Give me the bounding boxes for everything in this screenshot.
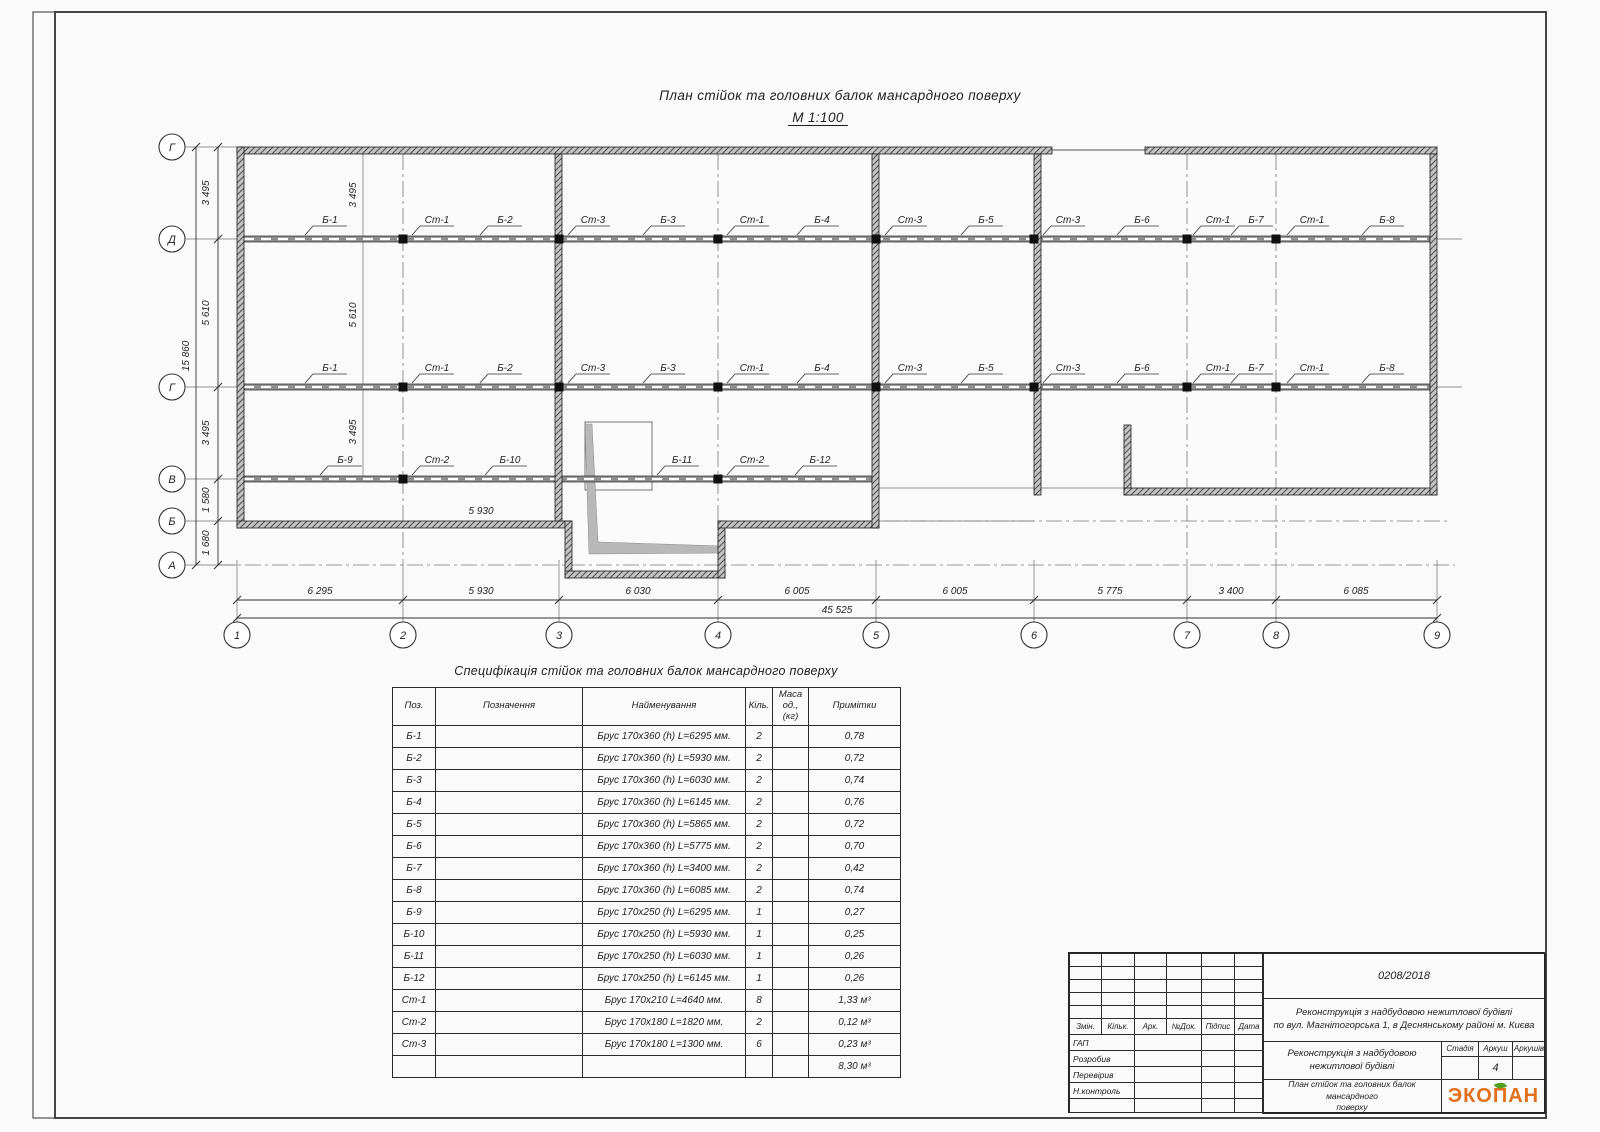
col-data: Дата [1235,1019,1264,1035]
svg-text:Ст-3: Ст-3 [581,215,606,226]
spec-cell-notes: 0,72 [809,748,901,770]
svg-text:1 580: 1 580 [201,487,212,512]
axis-col-label: 9 [1434,630,1440,642]
stair-ramp [585,424,722,554]
spec-cell-name [583,1056,746,1078]
svg-text:Ст-2: Ст-2 [425,455,450,466]
svg-text:3 400: 3 400 [1218,586,1243,597]
svg-text:Ст-3: Ст-3 [1056,363,1081,374]
spec-cell-notes: 0,76 [809,792,901,814]
spec-cell-qty: 1 [746,924,773,946]
drawing-title: План стійок та головних балок мансардног… [560,88,1120,103]
spec-cell-qty: 8 [746,990,773,1012]
svg-text:Ст-1: Ст-1 [740,363,764,374]
spec-cell-designation [436,1012,583,1034]
svg-text:Б-4: Б-4 [814,215,830,226]
sheet-number: 4 [1478,1056,1513,1080]
spec-cell-mass [773,924,809,946]
axis-row-label: А [167,560,175,572]
spec-row: Б-9 Брус 170х250 (h) L=6295 мм. 1 0,27 [393,902,901,924]
spec-cell-pos: Ст-3 [393,1034,436,1056]
spec-row: Ст-3 Брус 170х180 L=1300 мм. 6 0,23 м³ [393,1034,901,1056]
spec-cell-pos: Б-7 [393,858,436,880]
spec-row: Б-10 Брус 170х250 (h) L=5930 мм. 1 0,25 [393,924,901,946]
spec-cell-designation [436,880,583,902]
axis-col-label: 8 [1273,630,1280,642]
spec-cell-name: Брус 170х360 (h) L=3400 мм. [583,858,746,880]
spec-cell-designation [436,1034,583,1056]
svg-text:6 005: 6 005 [784,586,809,597]
spec-cell-notes: 0,23 м³ [809,1034,901,1056]
svg-text:Б-10: Б-10 [500,455,521,466]
spec-header-name: Найменування [583,688,746,726]
object-line1: Реконструкція з надбудовою [1288,1048,1417,1061]
spec-cell-pos: Б-2 [393,748,436,770]
spec-cell-notes: 0,26 [809,946,901,968]
spec-cell-qty: 2 [746,726,773,748]
spec-row: 8,30 м³ [393,1056,901,1078]
spec-cell-designation [436,792,583,814]
svg-text:Б-1: Б-1 [322,363,337,374]
spec-cell-qty: 2 [746,792,773,814]
spec-cell-pos: Б-9 [393,902,436,924]
sheet-title-line1: План стійок та головних балок мансардног… [1263,1079,1441,1102]
spec-cell-mass [773,836,809,858]
svg-text:Б-9: Б-9 [337,455,353,466]
svg-text:Ст-1: Ст-1 [1206,363,1230,374]
svg-text:3 495: 3 495 [201,180,212,205]
svg-text:Б-5: Б-5 [978,363,994,374]
spec-row: Б-12 Брус 170х250 (h) L=6145 мм. 1 0,26 [393,968,901,990]
spec-cell-mass [773,726,809,748]
svg-text:Б-6: Б-6 [1134,363,1150,374]
object-name: Реконструкція з надбудовою нежитлової бу… [1262,1041,1442,1080]
spec-cell-pos: Б-10 [393,924,436,946]
svg-text:Ст-1: Ст-1 [425,215,449,226]
spec-row: Б-6 Брус 170х360 (h) L=5775 мм. 2 0,70 [393,836,901,858]
svg-text:Ст-2: Ст-2 [740,455,765,466]
svg-text:Б-3: Б-3 [660,215,676,226]
role-gap: ГАП [1070,1035,1135,1051]
col-pidpys: Підпис [1202,1019,1235,1035]
spec-cell-name: Брус 170х360 (h) L=6145 мм. [583,792,746,814]
spec-cell-qty: 1 [746,946,773,968]
spec-cell-designation [436,726,583,748]
spec-cell-notes: 1,33 м³ [809,990,901,1012]
svg-text:Б-1: Б-1 [322,215,337,226]
spec-cell-mass [773,1012,809,1034]
spec-cell-designation [436,924,583,946]
spec-cell-designation [436,946,583,968]
spec-cell-qty: 2 [746,814,773,836]
svg-text:Б-3: Б-3 [660,363,676,374]
svg-text:Ст-1: Ст-1 [1300,363,1324,374]
spec-cell-name: Брус 170х360 (h) L=5865 мм. [583,814,746,836]
grid-header-row: Змін. Кільк. Арк. №Док. Підпис Дата [1070,1019,1264,1035]
ekopan-logo: ЭКОПАН [1441,1079,1546,1114]
svg-text:Б-8: Б-8 [1379,215,1395,226]
spec-cell-pos: Б-5 [393,814,436,836]
dimension-labels: 3 495 5 610 3 495 1 580 1 680 15 860 3 4… [181,180,1369,616]
spec-cell-notes: 0,27 [809,902,901,924]
spec-cell-notes: 0,74 [809,880,901,902]
svg-text:15 860: 15 860 [181,340,192,371]
spec-cell-name: Брус 170х250 (h) L=5930 мм. [583,924,746,946]
spec-table-body: Б-1 Брус 170х360 (h) L=6295 мм. 2 0,78 Б… [393,726,901,1078]
col-ndok: №Док. [1167,1019,1202,1035]
title-block: Змін. Кільк. Арк. №Док. Підпис Дата ГАП … [1068,952,1545,1113]
axis-row-label: Г [169,382,176,394]
spec-cell-mass [773,792,809,814]
sheets-total [1512,1056,1546,1080]
axis-centerlines [218,154,1455,565]
spec-cell-mass [773,902,809,924]
svg-text:Ст-1: Ст-1 [425,363,449,374]
axis-col-label: 4 [715,630,721,642]
spec-cell-qty: 2 [746,880,773,902]
spec-header-designation: Позначення [436,688,583,726]
spec-row: Ст-1 Брус 170х210 L=4640 мм. 8 1,33 м³ [393,990,901,1012]
svg-text:Б-5: Б-5 [978,215,994,226]
role-rozrobyv: Розробив [1070,1051,1135,1067]
axis-row-label: Д [166,234,176,246]
spec-cell-mass [773,748,809,770]
spec-cell-qty [746,1056,773,1078]
spec-row: Б-4 Брус 170х360 (h) L=6145 мм. 2 0,76 [393,792,901,814]
spec-table: Поз. Позначення Найменування Кіль. Маса … [392,687,901,1078]
spec-cell-pos: Б-6 [393,836,436,858]
spec-header-notes: Примітки [809,688,901,726]
svg-text:Б-7: Б-7 [1248,363,1264,374]
spec-cell-pos: Б-4 [393,792,436,814]
spec-cell-pos: Ст-1 [393,990,436,1012]
doc-number: 0208/2018 [1262,953,1546,999]
spec-header-pos: Поз. [393,688,436,726]
spec-cell-pos: Б-1 [393,726,436,748]
svg-text:45 525: 45 525 [822,605,853,616]
spec-cell-name: Брус 170х250 (h) L=6030 мм. [583,946,746,968]
spec-cell-designation [436,770,583,792]
spec-cell-notes: 0,26 [809,968,901,990]
svg-text:6 295: 6 295 [307,586,332,597]
axis-col-label: 2 [399,630,406,642]
spec-cell-name: Брус 170х250 (h) L=6145 мм. [583,968,746,990]
axis-col-label: 1 [234,630,240,642]
spec-cell-name: Брус 170х360 (h) L=6030 мм. [583,770,746,792]
drawing-sheet: { "title": {"main": "План стійок та голо… [0,0,1600,1132]
spec-cell-mass [773,990,809,1012]
svg-text:1 680: 1 680 [201,530,212,555]
spec-cell-designation [436,748,583,770]
spec-cell-name: Брус 170х360 (h) L=6085 мм. [583,880,746,902]
spec-cell-name: Брус 170х360 (h) L=5775 мм. [583,836,746,858]
spec-cell-name: Брус 170х360 (h) L=6295 мм. [583,726,746,748]
svg-text:Ст-1: Ст-1 [1300,215,1324,226]
spec-cell-pos: Б-11 [393,946,436,968]
axis-row-label: В [168,474,175,486]
svg-text:6 085: 6 085 [1343,586,1368,597]
spec-cell-notes: 0,42 [809,858,901,880]
spec-cell-mass [773,770,809,792]
sheet-title-line2: поверху [1336,1102,1367,1113]
svg-text:Ст-3: Ст-3 [898,215,923,226]
spec-cell-name: Брус 170х180 L=1300 мм. [583,1034,746,1056]
axis-col-label: 3 [556,630,563,642]
axis-row-label: Г [169,142,176,154]
svg-text:Б-6: Б-6 [1134,215,1150,226]
spec-cell-notes: 8,30 м³ [809,1056,901,1078]
spec-row: Б-11 Брус 170х250 (h) L=6030 мм. 1 0,26 [393,946,901,968]
svg-text:Б-4: Б-4 [814,363,830,374]
project-name: Реконструкція з надбудовою нежитлової бу… [1262,998,1546,1042]
spec-row: Б-5 Брус 170х360 (h) L=5865 мм. 2 0,72 [393,814,901,836]
axis-col-label: 6 [1031,630,1038,642]
sheets-header: Аркушів [1512,1041,1546,1057]
spec-cell-notes: 0,78 [809,726,901,748]
spec-cell-mass [773,858,809,880]
col-zmin: Змін. [1070,1019,1102,1035]
svg-text:Б-2: Б-2 [497,215,513,226]
svg-text:3 495: 3 495 [348,419,359,444]
spec-cell-notes: 0,72 [809,814,901,836]
svg-text:Ст-3: Ст-3 [1056,215,1081,226]
specification: Специфікація стійок та головних балок ма… [392,664,900,1078]
axis-row-label: Б [168,516,175,528]
spec-cell-qty: 2 [746,748,773,770]
role-nkontrol: Н.контроль [1070,1083,1135,1099]
spec-cell-notes: 0,70 [809,836,901,858]
svg-text:5 930: 5 930 [468,506,493,517]
spec-row: Ст-2 Брус 170х180 L=1820 мм. 2 0,12 м³ [393,1012,901,1034]
svg-text:3 495: 3 495 [201,420,212,445]
spec-cell-qty: 1 [746,968,773,990]
object-line2: нежитлової будівлі [1310,1061,1395,1074]
col-ark: Арк. [1135,1019,1167,1035]
svg-text:5 610: 5 610 [348,302,359,327]
drawing-scale: М 1:100 [560,110,1076,125]
svg-text:6 005: 6 005 [942,586,967,597]
svg-text:3 495: 3 495 [348,182,359,207]
spec-cell-pos: Б-3 [393,770,436,792]
spec-cell-mass [773,946,809,968]
spec-cell-qty: 1 [746,902,773,924]
svg-text:Ст-1: Ст-1 [740,215,764,226]
spec-cell-designation [436,858,583,880]
sheet-title: План стійок та головних балок мансардног… [1262,1079,1442,1114]
spec-cell-name: Брус 170х210 L=4640 мм. [583,990,746,1012]
spec-cell-pos: Б-12 [393,968,436,990]
project-line2: по вул. Магнітогорська 1, в Деснянському… [1274,1020,1535,1033]
axis-col-label: 7 [1184,630,1191,642]
spec-cell-mass [773,1056,809,1078]
stage-header: Стадія [1441,1041,1479,1057]
spec-cell-qty: 2 [746,770,773,792]
svg-text:Б-12: Б-12 [810,455,831,466]
spec-cell-designation [436,1056,583,1078]
spec-cell-designation [436,990,583,1012]
svg-text:Б-2: Б-2 [497,363,513,374]
spec-cell-notes: 0,12 м³ [809,1012,901,1034]
svg-text:Ст-3: Ст-3 [898,363,923,374]
spec-cell-qty: 2 [746,858,773,880]
stud-markers [399,235,1281,484]
spec-cell-mass [773,1034,809,1056]
svg-text:Ст-3: Ст-3 [581,363,606,374]
spec-row: Б-8 Брус 170х360 (h) L=6085 мм. 2 0,74 [393,880,901,902]
spec-cell-mass [773,814,809,836]
svg-text:5 930: 5 930 [468,586,493,597]
beam-labels: Б-1 Ст-1 Б-2 Ст-3 Б-3 Ст-1 Б-4 Ст-3 Б-5 … [322,215,1395,466]
spec-cell-designation [436,836,583,858]
stair-opening [585,422,722,554]
spec-row: Б-7 Брус 170х360 (h) L=3400 мм. 2 0,42 [393,858,901,880]
svg-text:6 030: 6 030 [625,586,650,597]
spec-row: Б-3 Брус 170х360 (h) L=6030 мм. 2 0,74 [393,770,901,792]
col-kilk: Кільк. [1102,1019,1135,1035]
axis-col-label: 5 [873,630,880,642]
svg-text:Б-11: Б-11 [672,455,692,466]
project-line1: Реконструкція з надбудовою нежитлової бу… [1296,1007,1512,1020]
spec-row: Б-1 Брус 170х360 (h) L=6295 мм. 2 0,78 [393,726,901,748]
axis-circles [159,134,1450,648]
spec-title: Специфікація стійок та головних балок ма… [392,664,900,678]
spec-header-qty: Кіль. [746,688,773,726]
beams [244,236,1430,482]
spec-cell-designation [436,814,583,836]
spec-cell-name: Брус 170х250 (h) L=6295 мм. [583,902,746,924]
spec-cell-pos: Ст-2 [393,1012,436,1034]
spec-cell-mass [773,880,809,902]
svg-text:Б-7: Б-7 [1248,215,1264,226]
logo-text: ЭКОПАН [1448,1083,1539,1110]
svg-text:5 775: 5 775 [1097,586,1122,597]
spec-cell-mass [773,968,809,990]
title-block-grid: Змін. Кільк. Арк. №Док. Підпис Дата ГАП … [1069,953,1264,1113]
spec-cell-notes: 0,25 [809,924,901,946]
spec-cell-designation [436,968,583,990]
svg-text:5 610: 5 610 [201,300,212,325]
role-pereviryv: Перевірив [1070,1067,1135,1083]
spec-cell-qty: 2 [746,836,773,858]
svg-text:Ст-1: Ст-1 [1206,215,1230,226]
svg-text:Б-8: Б-8 [1379,363,1395,374]
sheet-header: Аркуш [1478,1041,1513,1057]
spec-header-row: Поз. Позначення Найменування Кіль. Маса … [393,688,901,726]
spec-cell-qty: 6 [746,1034,773,1056]
spec-cell-pos: Б-8 [393,880,436,902]
label-leaders [305,226,1404,475]
stage-value [1441,1056,1479,1080]
spec-cell-name: Брус 170х180 L=1820 мм. [583,1012,746,1034]
spec-cell-pos [393,1056,436,1078]
spec-row: Б-2 Брус 170х360 (h) L=5930 мм. 2 0,72 [393,748,901,770]
spec-cell-name: Брус 170х360 (h) L=5930 мм. [583,748,746,770]
spec-header-mass: Маса од., (кг) [773,688,809,726]
spec-cell-notes: 0,74 [809,770,901,792]
spec-cell-designation [436,902,583,924]
spec-cell-qty: 2 [746,1012,773,1034]
